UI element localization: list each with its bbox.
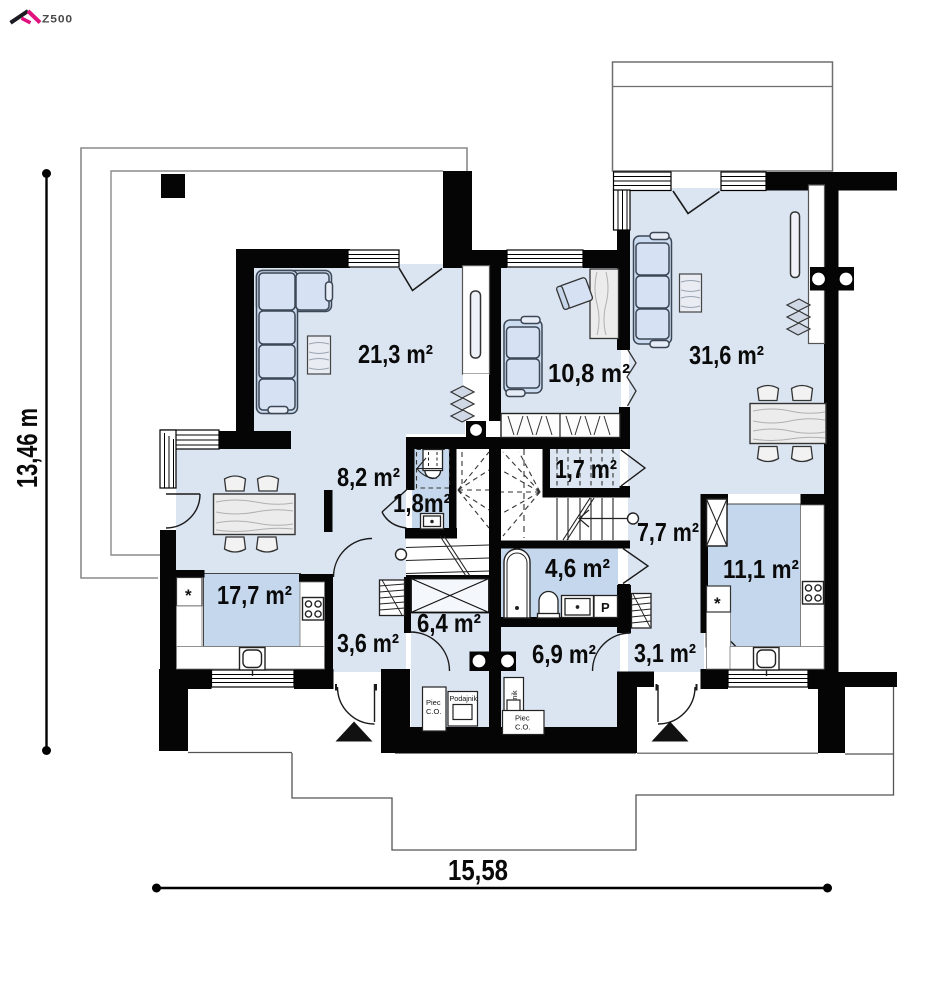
svg-text:3,6 m²: 3,6 m² [337,628,399,658]
svg-text:*: * [185,586,192,605]
svg-text:Podajnik: Podajnik [450,694,478,703]
svg-text:15,58: 15,58 [448,855,508,887]
svg-text:13,46 m: 13,46 m [12,408,44,488]
svg-text:C.O.: C.O. [426,707,441,716]
svg-text:Piec: Piec [515,714,530,723]
svg-text:7,7 m²: 7,7 m² [637,517,699,547]
svg-text:6,9 m²: 6,9 m² [532,639,596,669]
svg-text:3,1 m²: 3,1 m² [634,638,696,668]
svg-text:31,6 m²: 31,6 m² [689,340,764,370]
svg-text:Piec: Piec [426,698,441,707]
svg-text:10,8 m²: 10,8 m² [548,358,630,388]
svg-text:8,2 m²: 8,2 m² [337,462,400,492]
svg-text:C.O.: C.O. [515,723,530,732]
svg-text:1,8m²: 1,8m² [393,488,451,518]
svg-text:11,1 m²: 11,1 m² [723,554,799,584]
svg-text:6,4 m²: 6,4 m² [417,608,481,638]
svg-text:17,7 m²: 17,7 m² [217,580,292,610]
svg-text:21,3 m²: 21,3 m² [358,339,433,369]
svg-text:*: * [714,594,721,613]
svg-text:Z500: Z500 [42,14,73,26]
svg-text:4,6 m²: 4,6 m² [545,553,610,583]
svg-text:P: P [601,600,610,615]
svg-text:1,7 m²: 1,7 m² [555,454,617,484]
